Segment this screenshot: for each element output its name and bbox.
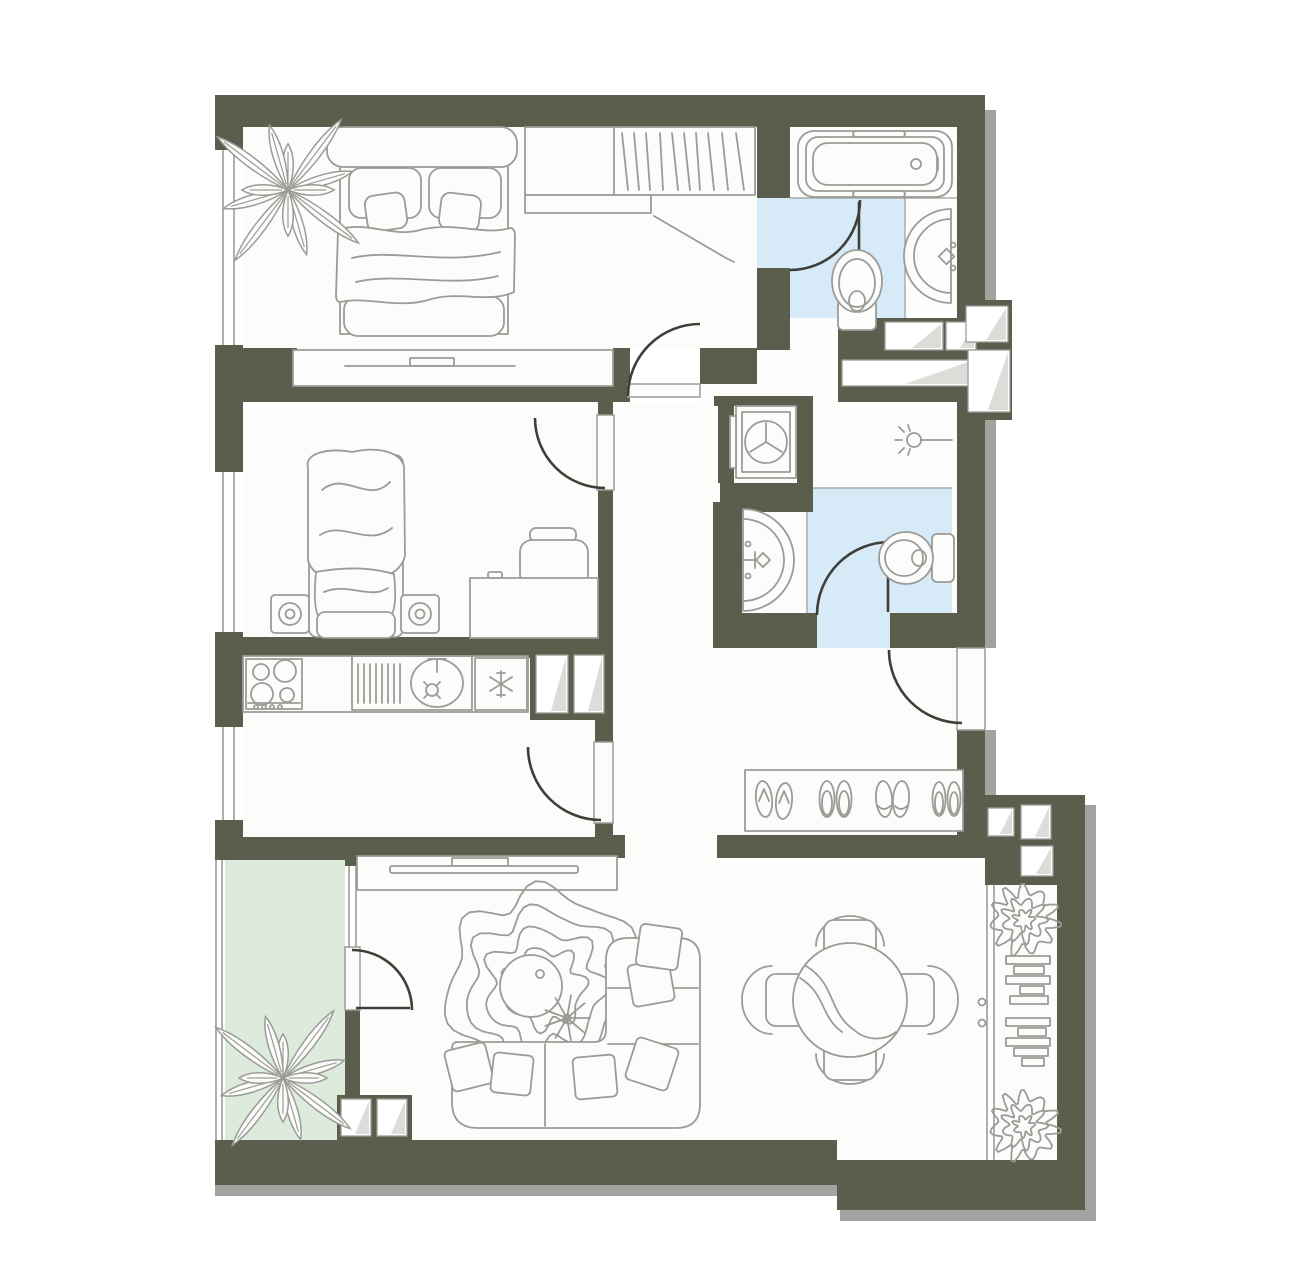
pillow [490, 1052, 534, 1096]
kitchen-fixtures [243, 656, 528, 712]
dining-table [793, 943, 907, 1057]
vent-icon [885, 322, 943, 350]
vent-icon [988, 808, 1014, 836]
double-bed [327, 127, 517, 336]
window-bedroom-2 [215, 472, 243, 632]
window-kitchen [215, 727, 243, 820]
pillow [635, 923, 682, 970]
single-bed [308, 450, 405, 638]
vent-icon [1021, 846, 1053, 876]
floor-plan-page [0, 0, 1290, 1280]
balcony-left-glazing [213, 860, 225, 1140]
speaker-icon [271, 595, 309, 633]
speaker-icon [401, 595, 439, 633]
vent-icon [968, 350, 1010, 412]
vent-icon [574, 655, 604, 713]
cushion [364, 191, 409, 232]
window-bedroom-1 [215, 150, 243, 345]
washing-machine-icon [730, 406, 796, 478]
blanket [336, 227, 515, 303]
toilet-icon [879, 532, 954, 584]
blanket [308, 450, 405, 579]
pillow [572, 1054, 618, 1100]
shoe-mat [745, 770, 963, 831]
bathtub-icon [798, 131, 952, 197]
dresser-with-tv [293, 350, 613, 386]
vent-icon [1021, 805, 1051, 839]
vent-icon [377, 1099, 407, 1136]
floor-plan [0, 0, 1290, 1280]
tv-console [357, 856, 617, 890]
pillow [444, 1042, 495, 1093]
vent-icon [966, 306, 1008, 342]
tv [390, 866, 578, 873]
vent-icon [536, 655, 568, 713]
vent-icon [341, 1099, 371, 1136]
toilet-icon [832, 250, 882, 330]
vent-icon [842, 360, 970, 386]
coffee-table [500, 955, 562, 1017]
